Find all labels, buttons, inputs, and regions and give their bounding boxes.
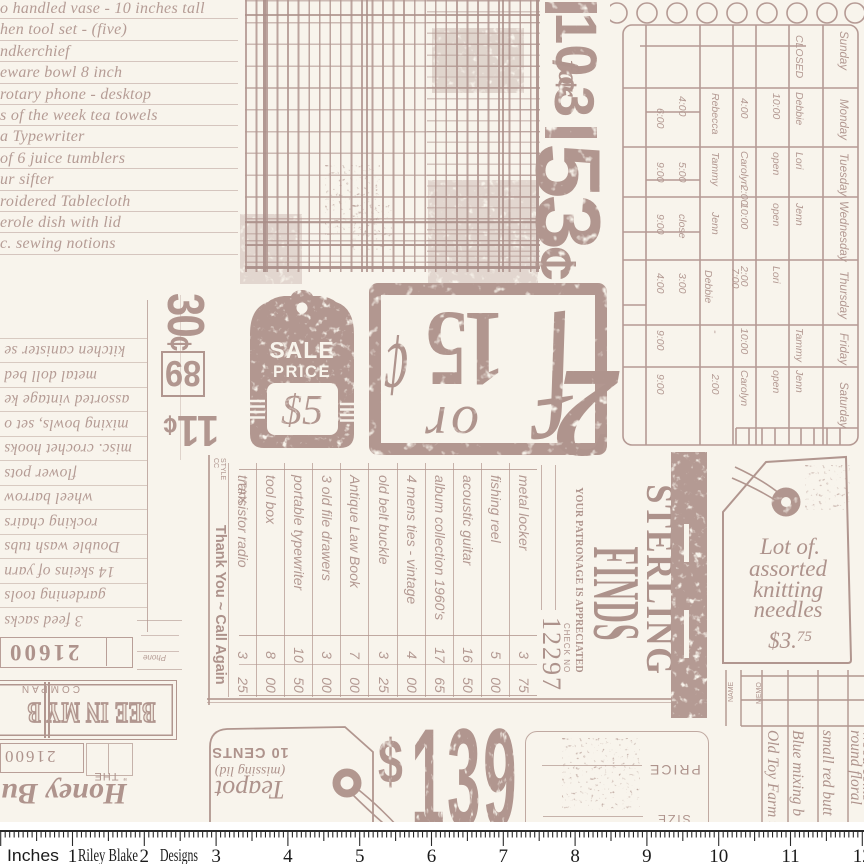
svg-text:Blue mixing b: Blue mixing b bbox=[789, 730, 806, 816]
svg-text:CLOSED: CLOSED bbox=[793, 35, 805, 79]
svg-text:9:00: 9:00 bbox=[654, 162, 666, 183]
svg-text:4:00: 4:00 bbox=[738, 98, 750, 119]
svg-text:Jenn: Jenn bbox=[793, 202, 805, 226]
svg-text:9:00: 9:00 bbox=[654, 330, 666, 351]
svg-text:4: 4 bbox=[283, 846, 293, 864]
svg-text:Old Toy Farm t: Old Toy Farm t bbox=[764, 730, 781, 826]
svg-text:9:00: 9:00 bbox=[654, 374, 666, 395]
svg-text:$5: $5 bbox=[281, 388, 323, 434]
svg-text:4:00: 4:00 bbox=[676, 96, 688, 117]
svg-text:open: open bbox=[770, 203, 782, 227]
svg-text:7:00: 7:00 bbox=[729, 268, 741, 289]
svg-text:SALE: SALE bbox=[269, 337, 334, 363]
svg-text:Thursday: Thursday bbox=[837, 271, 849, 320]
svg-text:3: 3 bbox=[211, 846, 221, 864]
svg-text:Sunday: Sunday bbox=[837, 31, 849, 71]
svg-text:Designs: Designs bbox=[160, 845, 198, 864]
svg-text:Jenn: Jenn bbox=[709, 211, 721, 235]
svg-text:needles: needles bbox=[754, 597, 823, 622]
svg-text:12: 12 bbox=[853, 846, 864, 864]
svg-text:8: 8 bbox=[570, 846, 580, 864]
svg-text:open: open bbox=[770, 370, 782, 394]
svg-text:Friday: Friday bbox=[837, 333, 849, 366]
svg-text:Debbie: Debbie bbox=[793, 92, 805, 125]
svg-text:Debbie: Debbie bbox=[702, 270, 714, 303]
svg-text:PRICE: PRICE bbox=[273, 363, 331, 381]
svg-text:Lori: Lori bbox=[793, 152, 805, 170]
svg-text:Saturday: Saturday bbox=[837, 382, 849, 429]
svg-text:small red butt: small red butt bbox=[819, 730, 836, 816]
svg-text:3:00: 3:00 bbox=[676, 273, 688, 294]
svg-text:Tammy: Tammy bbox=[793, 328, 805, 363]
svg-text:Riley Blake: Riley Blake bbox=[78, 845, 138, 864]
svg-text:Jenn: Jenn bbox=[793, 369, 805, 393]
svg-text:$3.75: $3.75 bbox=[768, 628, 812, 653]
svg-text:9:00: 9:00 bbox=[654, 214, 666, 235]
svg-text:Tammy: Tammy bbox=[709, 152, 721, 187]
svg-text:9: 9 bbox=[642, 846, 652, 864]
svg-text:6: 6 bbox=[427, 846, 437, 864]
svg-text:Tuesday: Tuesday bbox=[837, 153, 849, 198]
svg-text:5: 5 bbox=[355, 846, 365, 864]
svg-text:NAME: NAME bbox=[728, 681, 735, 702]
svg-text:Carolyn: Carolyn bbox=[738, 151, 750, 187]
svg-text:Inches: Inches bbox=[7, 846, 59, 864]
svg-text:10: 10 bbox=[709, 846, 728, 864]
svg-text:2:00: 2:00 bbox=[709, 373, 721, 395]
svg-text:10:00: 10:00 bbox=[770, 93, 782, 119]
svg-text:1: 1 bbox=[68, 846, 78, 864]
svg-text:4:00: 4:00 bbox=[654, 273, 666, 294]
svg-text:MEMO: MEMO bbox=[756, 682, 763, 704]
svg-text:Monday: Monday bbox=[837, 99, 849, 141]
svg-text:Rebecca: Rebecca bbox=[709, 93, 721, 135]
svg-text:6:00: 6:00 bbox=[654, 108, 666, 129]
svg-text:Wednesday: Wednesday bbox=[837, 201, 849, 263]
svg-text:7: 7 bbox=[499, 846, 509, 864]
svg-text:5:00: 5:00 bbox=[676, 162, 688, 183]
svg-text:Lori: Lori bbox=[770, 266, 782, 284]
svg-text:10:00: 10:00 bbox=[738, 328, 750, 354]
svg-text:11: 11 bbox=[781, 846, 799, 864]
svg-text:Wood comb: Wood comb bbox=[859, 730, 864, 802]
svg-text:Carolyn: Carolyn bbox=[738, 370, 750, 406]
svg-text:10:00: 10:00 bbox=[738, 203, 750, 229]
svg-text:close: close bbox=[676, 214, 688, 239]
svg-text:open: open bbox=[770, 152, 782, 176]
svg-text:-: - bbox=[709, 330, 721, 334]
svg-text:2: 2 bbox=[140, 846, 150, 864]
